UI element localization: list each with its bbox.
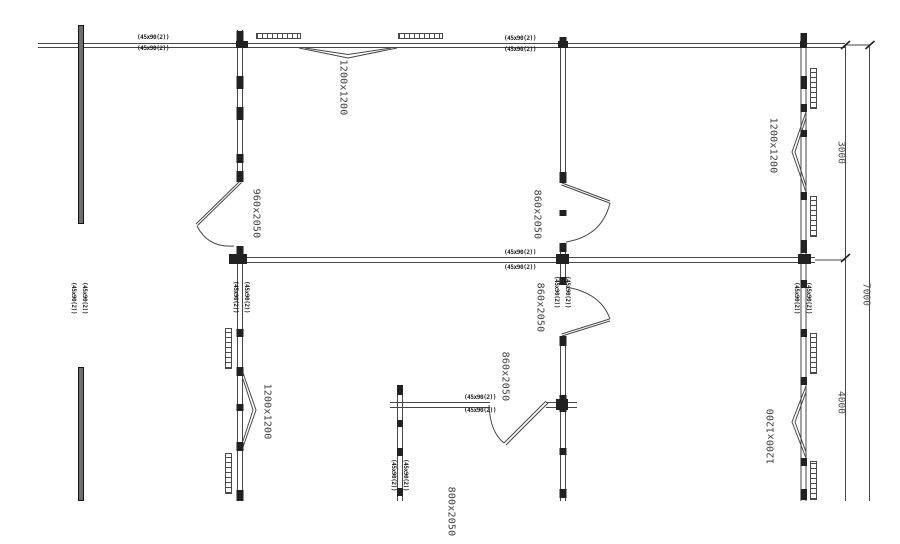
plan-linework <box>0 0 900 501</box>
middle-wall <box>237 258 846 263</box>
dimension-lines <box>845 45 870 501</box>
sill-hatch-right-1 <box>810 68 817 109</box>
window-right-bottom-icon <box>792 386 806 458</box>
lintel-hatch-top-right <box>398 33 443 39</box>
top-wall <box>38 44 845 48</box>
door-left-icon <box>196 181 242 246</box>
sill-hatch-left-1 <box>225 328 232 369</box>
sill-hatch-right-2 <box>810 196 817 237</box>
thick-wall-bar-lower <box>78 367 84 501</box>
floor-plan-canvas: { "drawing": { "windows": { "top": "1200… <box>0 0 900 501</box>
window-symbols <box>243 48 806 458</box>
door-middle-top-icon <box>562 183 611 242</box>
left-vertical-wall <box>238 30 243 501</box>
window-top-icon <box>299 48 397 58</box>
middle-vertical-wall <box>561 37 566 501</box>
window-right-top-icon <box>792 112 806 192</box>
sill-hatch-right-3 <box>810 333 817 374</box>
sill-hatch-right-4 <box>810 461 817 500</box>
door-middle-lower-icon <box>562 287 611 336</box>
right-vertical-wall <box>801 33 806 501</box>
door-bottom-icon <box>489 401 548 445</box>
lintel-hatch-top-left <box>256 33 301 39</box>
thick-wall-bar-upper <box>78 25 84 224</box>
walls <box>38 30 846 501</box>
bottom-wall <box>390 403 577 408</box>
window-left-icon <box>243 373 256 447</box>
sill-hatch-left-2 <box>225 453 232 494</box>
